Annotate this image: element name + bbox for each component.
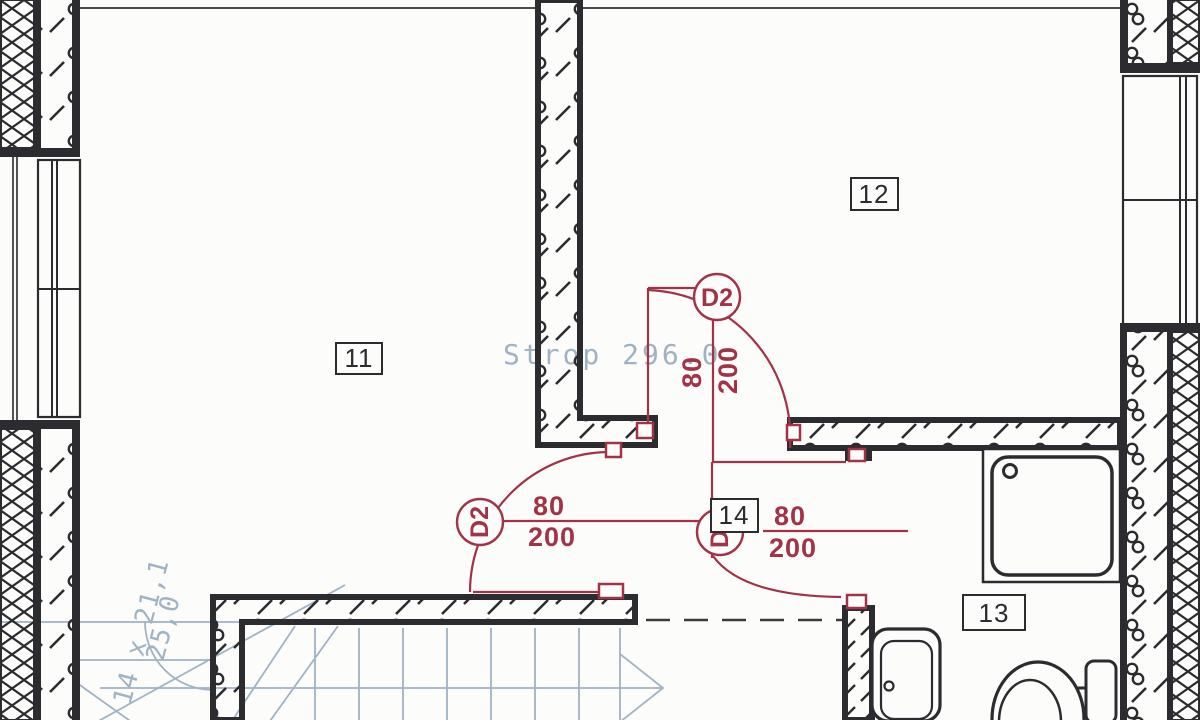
room-label-13: 13	[963, 595, 1025, 630]
jamb-icon	[849, 449, 865, 461]
room-label-12: 12	[851, 178, 898, 210]
floor-plan: 14 x 21,1 25,0 Strop 296.0	[0, 0, 1200, 720]
right-exterior-wall-lower	[1120, 323, 1200, 720]
door-tag-upper: D2	[701, 284, 733, 312]
door-height-lower: 200	[769, 533, 817, 563]
right-exterior-wall-upper	[1120, 0, 1200, 73]
jamb-icon	[637, 423, 653, 438]
bathroom-partition-wall	[845, 608, 872, 720]
left-exterior-wall-lower	[0, 420, 80, 720]
jamb-icon	[599, 584, 623, 598]
door-height-left: 200	[528, 522, 576, 552]
room-number-12: 12	[859, 179, 890, 209]
door-width-upper: 80	[677, 356, 707, 388]
door-height-upper: 200	[713, 346, 743, 394]
room-number-13: 13	[979, 598, 1010, 628]
room-label-11: 11	[336, 343, 382, 374]
left-exterior-wall-upper	[0, 0, 80, 157]
washbasin	[872, 629, 940, 720]
door-width-lower: 80	[774, 501, 806, 531]
room-label-14: 14	[711, 499, 758, 532]
toilet-tank	[1086, 661, 1116, 720]
jamb-icon	[847, 595, 866, 608]
floor-plan-svg: 14 x 21,1 25,0 Strop 296.0	[0, 0, 1200, 720]
shower-tray	[983, 449, 1120, 582]
room-number-14: 14	[719, 500, 750, 530]
jamb-icon	[787, 425, 800, 440]
door-width-left: 80	[533, 491, 565, 521]
room-number-11: 11	[345, 343, 374, 373]
jamb-icon	[606, 443, 621, 457]
door-tag-left: D2	[466, 506, 494, 538]
